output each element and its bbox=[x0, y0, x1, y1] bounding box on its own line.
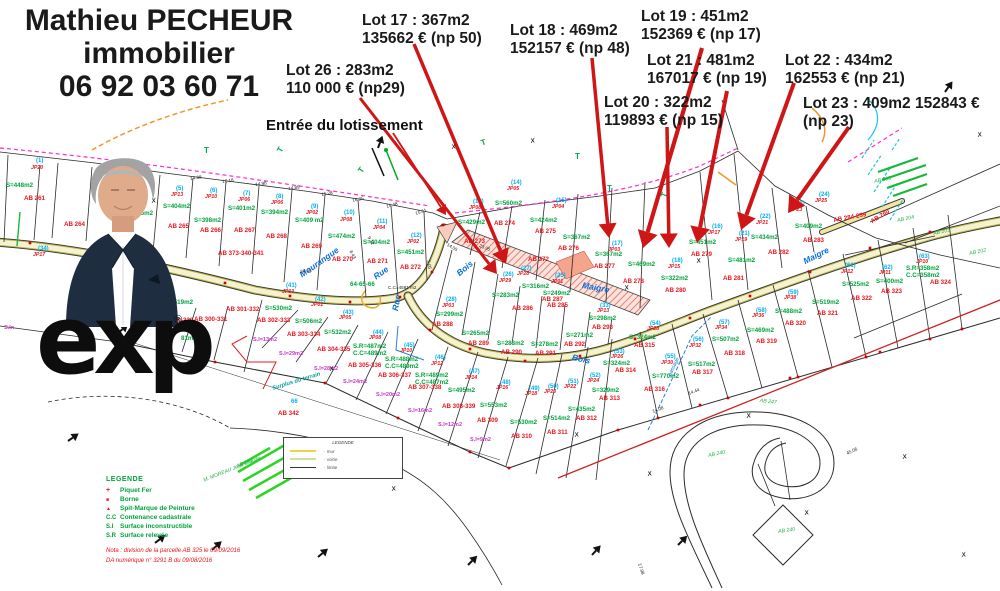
survey-borne-dot bbox=[399, 296, 402, 299]
callout-lot23: Lot 23 : 409m2 152843 €(np 23) bbox=[803, 95, 980, 130]
survey-borne-dot bbox=[657, 417, 660, 420]
survey-borne-dot bbox=[727, 397, 730, 400]
lot-arrow bbox=[788, 127, 849, 213]
face bbox=[98, 166, 148, 224]
survey-borne-dot bbox=[634, 338, 637, 341]
spit-icon: ▲ bbox=[106, 506, 120, 512]
survey-borne-dot bbox=[431, 271, 434, 274]
agent-role: immobilier bbox=[6, 37, 312, 70]
survey-borne-dot bbox=[29, 242, 32, 245]
survey-borne-dot bbox=[224, 282, 227, 285]
agent-phone: 06 92 03 60 71 bbox=[6, 70, 312, 103]
survey-borne-dot bbox=[397, 417, 400, 420]
lot-arrow bbox=[737, 83, 794, 230]
page-title: Mathieu PECHEUR immobilier 06 92 03 60 7… bbox=[6, 4, 312, 103]
legend-swatch-yellow bbox=[290, 450, 316, 452]
survey-x-mark: x bbox=[573, 428, 581, 439]
callout-lot26: Lot 26 : 283m2110 000 € (np29) bbox=[286, 62, 405, 97]
agent-name: Mathieu PECHEUR bbox=[6, 4, 312, 37]
survey-arrow-tick bbox=[468, 556, 477, 565]
survey-x-mark: x bbox=[695, 254, 703, 265]
legend-title: LEGENDE bbox=[106, 476, 240, 483]
survey-arrow-tick bbox=[592, 545, 601, 555]
callout-lot21: Lot 21 : 481m2167017 € (np 19) bbox=[647, 52, 767, 87]
survey-borne-dot bbox=[797, 376, 800, 379]
survey-x-mark: x bbox=[803, 506, 811, 517]
legend-swatch-green bbox=[290, 458, 316, 460]
callout-lot22: Lot 22 : 434m2162553 € (np 21) bbox=[785, 52, 905, 87]
flyer-page: (1)JP20S=448m2AB 261(4)JP18S=405m2AB 264… bbox=[0, 0, 1000, 591]
callout-lot17: Lot 17 : 367m2135662 € (np 50) bbox=[362, 12, 482, 47]
survey-borne-dot bbox=[749, 295, 752, 298]
callout-lot19: Lot 19 : 451m2152369 € (np 17) bbox=[641, 8, 761, 43]
survey-borne-dot bbox=[929, 338, 932, 341]
survey-borne-dot bbox=[324, 382, 327, 385]
survey-borne-dot bbox=[289, 295, 292, 298]
survey-borne-dot bbox=[699, 404, 702, 407]
registered-mark: ® bbox=[174, 314, 182, 326]
survey-borne-dot bbox=[865, 356, 868, 359]
survey-borne-dot bbox=[809, 271, 812, 274]
survey-borne-dot bbox=[869, 247, 872, 250]
survey-borne-dot bbox=[469, 451, 472, 454]
callout-lot18: Lot 18 : 469m2152157 € (np 48) bbox=[510, 22, 630, 57]
survey-x-mark: x bbox=[529, 134, 537, 145]
lot-arrow bbox=[592, 58, 617, 238]
survey-borne-dot bbox=[429, 329, 432, 332]
survey-x-mark: x bbox=[646, 467, 654, 478]
survey-borne-dot bbox=[579, 355, 582, 358]
survey-borne-dot bbox=[961, 328, 964, 331]
borne-icon: ■ bbox=[106, 497, 120, 503]
exp-logo: exp ® bbox=[36, 298, 211, 398]
survey-x-mark: x bbox=[328, 362, 336, 373]
survey-arrow-tick bbox=[945, 81, 953, 92]
survey-borne-dot bbox=[469, 348, 472, 351]
survey-x-mark: x bbox=[390, 482, 398, 493]
note-da: DA numérique n° 3291 B du 09/08/2016 bbox=[106, 556, 240, 566]
legend-notes: Nota : division de la parcelle AB 325 le… bbox=[106, 546, 240, 566]
survey-arrow-tick bbox=[68, 434, 79, 442]
survey-borne-dot bbox=[689, 317, 692, 320]
survey-borne-dot bbox=[617, 429, 620, 432]
survey-borne-dot bbox=[349, 301, 352, 304]
lot-arrow bbox=[414, 44, 509, 264]
exp-logo-text: exp bbox=[36, 286, 209, 396]
survey-x-mark: x bbox=[960, 548, 968, 559]
survey-arrow-tick bbox=[678, 536, 687, 545]
legend-swatch-black bbox=[290, 467, 316, 468]
survey-borne-dot bbox=[929, 231, 932, 234]
survey-borne-dot bbox=[524, 360, 527, 363]
plan-legend-title: LEGENDE bbox=[290, 440, 396, 445]
piquet-fer-icon: + bbox=[106, 487, 120, 494]
survey-borne-dot bbox=[214, 361, 217, 364]
survey-arrow-tick bbox=[376, 136, 384, 148]
survey-legend: LEGENDE +Piquet Fer ■Borne ▲Spit-Marque … bbox=[106, 476, 240, 566]
survey-arrow-tick bbox=[318, 549, 328, 557]
callout-lot20: Lot 20 : 322m2119893 € (np 15) bbox=[604, 94, 723, 129]
survey-borne-dot bbox=[508, 467, 511, 470]
survey-borne-dot bbox=[789, 377, 792, 380]
plan-legend-box: LEGENDE · mur · voirie · limite bbox=[283, 437, 403, 479]
entrance-label: Entrée du lotissement bbox=[266, 117, 423, 134]
note-division: Nota : division de la parcelle AB 325 le… bbox=[106, 546, 240, 556]
survey-x-mark: x bbox=[745, 409, 753, 420]
survey-x-mark: x bbox=[623, 281, 631, 292]
survey-borne-dot bbox=[879, 351, 882, 354]
survey-x-mark: x bbox=[901, 450, 909, 461]
survey-borne-dot bbox=[442, 224, 445, 227]
